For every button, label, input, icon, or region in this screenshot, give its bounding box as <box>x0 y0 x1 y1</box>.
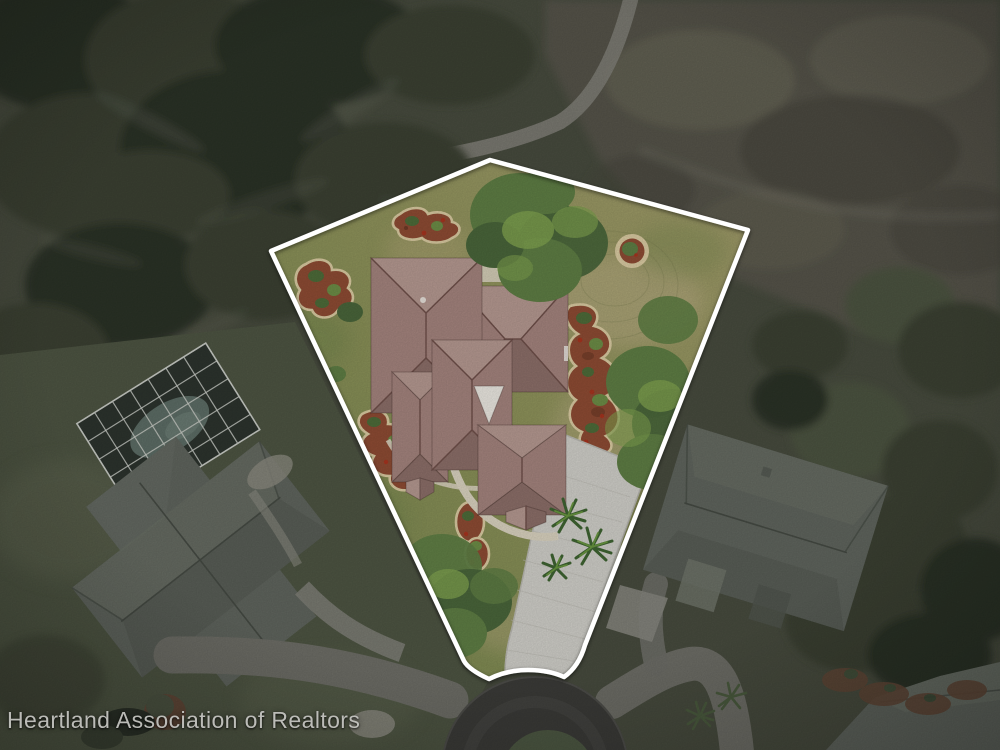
vignette <box>0 0 1000 750</box>
watermark-text: Heartland Association of Realtors <box>7 707 360 734</box>
aerial-scene <box>0 0 1000 750</box>
aerial-photo: Heartland Association of Realtors <box>0 0 1000 750</box>
